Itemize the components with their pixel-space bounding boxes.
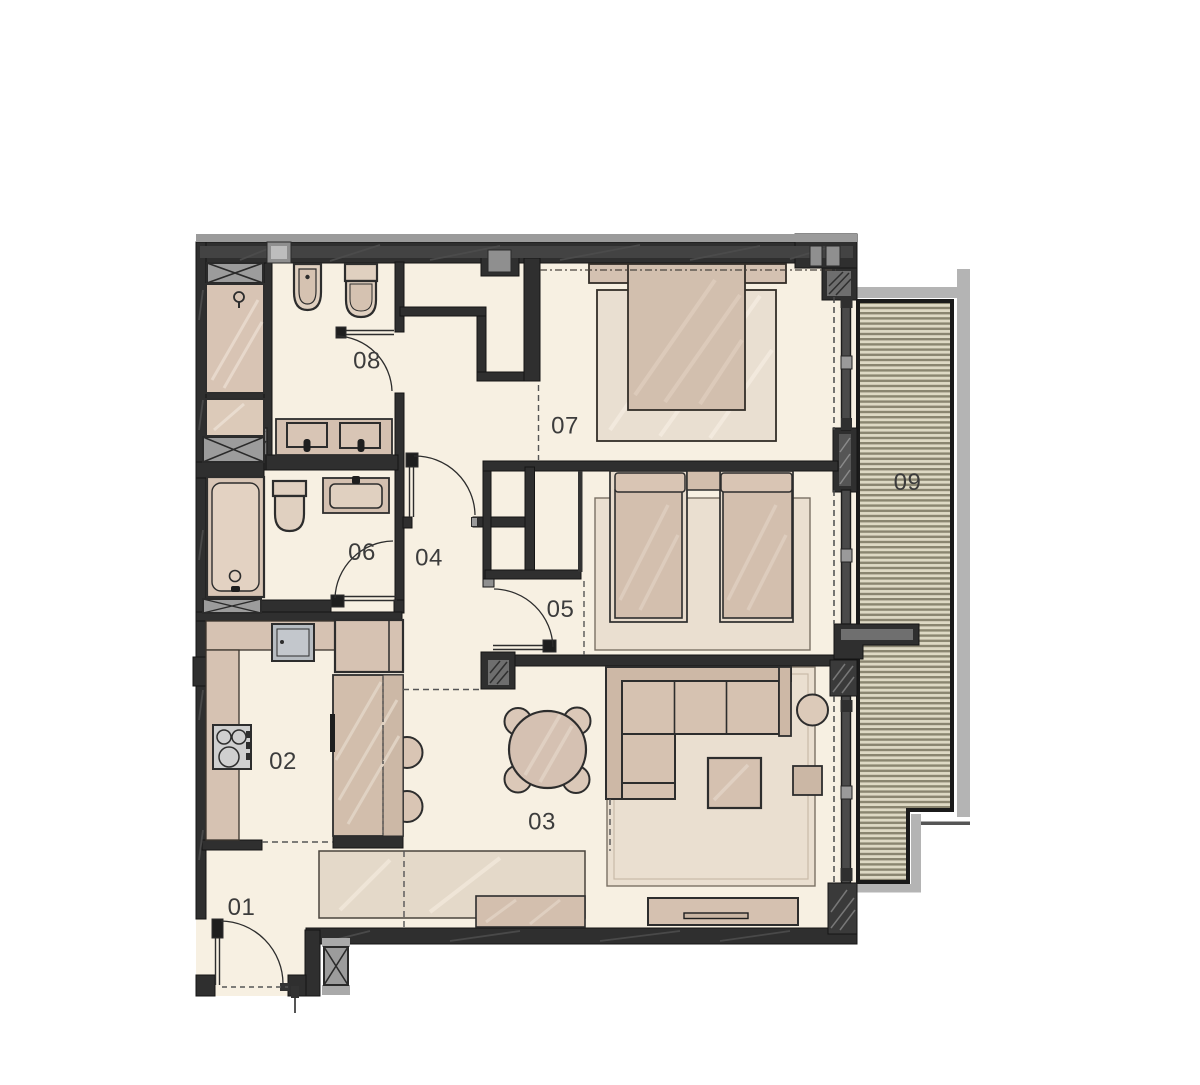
svg-text:01: 01 [228, 894, 256, 921]
svg-text:09: 09 [894, 469, 922, 496]
svg-text:06: 06 [348, 539, 376, 566]
svg-text:03: 03 [528, 809, 556, 836]
svg-text:08: 08 [353, 348, 381, 375]
svg-text:07: 07 [551, 413, 579, 440]
svg-text:05: 05 [547, 596, 575, 623]
svg-text:02: 02 [269, 748, 297, 775]
svg-text:04: 04 [415, 545, 443, 572]
